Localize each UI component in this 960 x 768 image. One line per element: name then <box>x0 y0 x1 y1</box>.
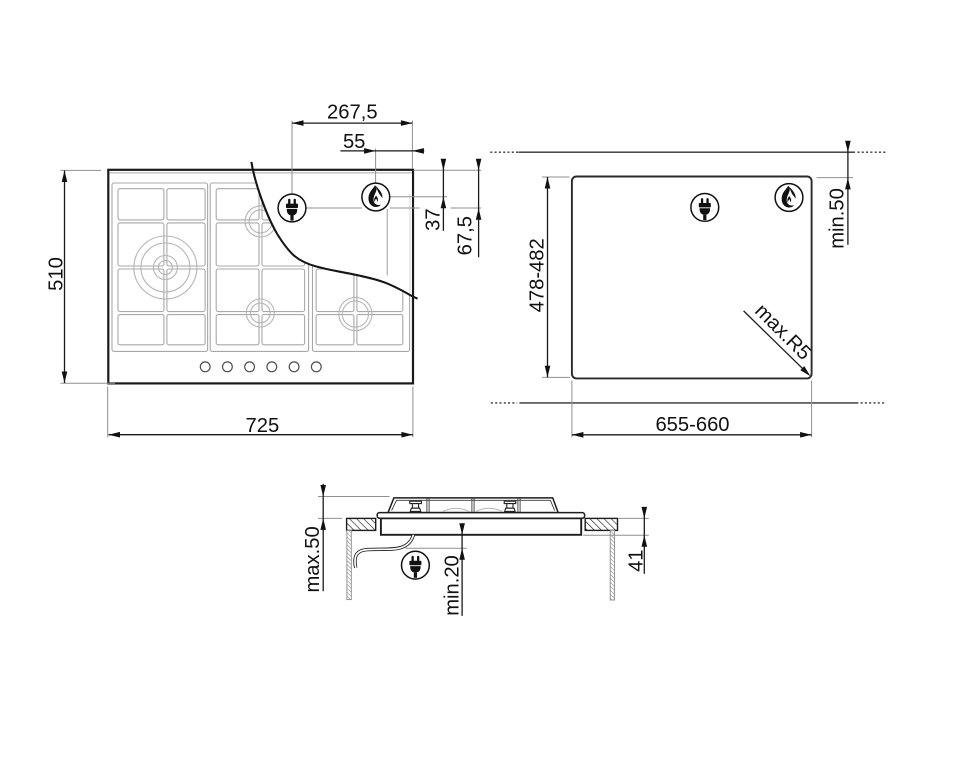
svg-text:67,5: 67,5 <box>455 216 477 255</box>
svg-text:267,5: 267,5 <box>327 102 378 124</box>
svg-text:min.20: min.20 <box>441 555 463 616</box>
svg-text:478-482: 478-482 <box>527 238 549 312</box>
svg-text:725: 725 <box>246 415 280 437</box>
svg-text:41: 41 <box>626 549 648 571</box>
svg-text:510: 510 <box>46 257 68 291</box>
svg-text:37: 37 <box>422 208 444 230</box>
svg-text:655-660: 655-660 <box>655 414 729 436</box>
svg-text:min.50: min.50 <box>827 188 849 249</box>
svg-text:55: 55 <box>343 131 365 153</box>
svg-text:max.50: max.50 <box>302 526 324 592</box>
